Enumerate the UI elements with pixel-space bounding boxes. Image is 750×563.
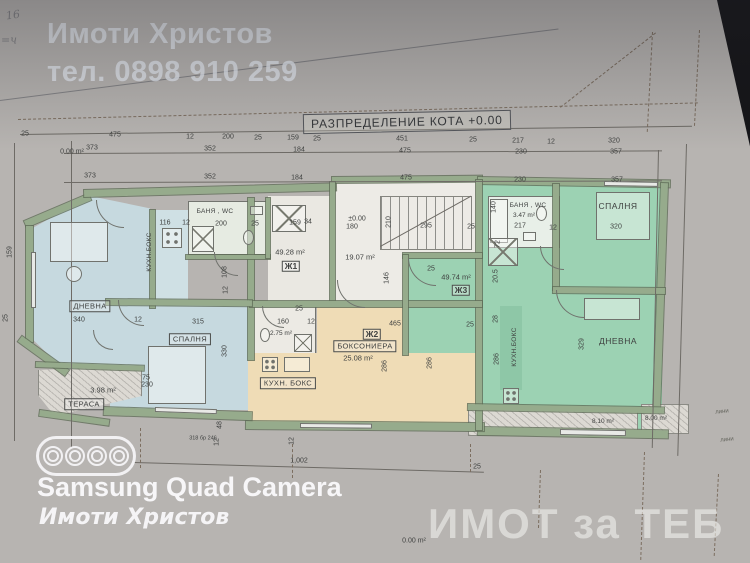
room-label: КУХН.БОКС bbox=[147, 232, 154, 271]
boundary-line-label: лини bbox=[720, 436, 734, 443]
dashed-boundary-line bbox=[647, 32, 653, 132]
dim-label: 230 bbox=[515, 149, 527, 156]
dashed-boundary-line bbox=[470, 444, 471, 472]
wall-segment bbox=[266, 198, 270, 258]
dim-label: 230 bbox=[141, 382, 153, 389]
dim-label: 72 bbox=[495, 240, 502, 248]
boundary-line-label: лини bbox=[715, 408, 729, 415]
area-label: 8.00 m² bbox=[645, 416, 667, 423]
counter-outline bbox=[284, 357, 310, 372]
dimension-line bbox=[14, 143, 15, 441]
dim-label: 25 bbox=[427, 266, 435, 273]
dim-label: 25 bbox=[295, 306, 303, 313]
dim-label: 12 bbox=[223, 286, 230, 294]
dim-label: 200 bbox=[215, 221, 227, 228]
dim-label: 12 bbox=[182, 220, 190, 227]
dim-label: 25 bbox=[21, 131, 29, 138]
dim-label: 230 bbox=[514, 177, 526, 184]
dim-label: 1,002 bbox=[290, 458, 308, 465]
wall-segment bbox=[250, 301, 482, 307]
corner-watermark: ИМОТ за ТЕБ bbox=[428, 500, 724, 548]
dim-label: 25 bbox=[251, 221, 259, 228]
shaft-symbol bbox=[272, 205, 306, 232]
room-label: СПАЛНЯ bbox=[169, 333, 211, 345]
dim-label: 357 bbox=[610, 149, 622, 156]
dim-label: 12 bbox=[134, 317, 142, 324]
sofa-outline bbox=[584, 298, 640, 320]
dim-label: 329 bbox=[579, 338, 586, 350]
dim-label: 12 bbox=[289, 437, 296, 445]
area-label: 8.10 m² bbox=[592, 419, 614, 426]
dim-label: 200 bbox=[222, 134, 234, 141]
dim-label: 340 bbox=[73, 317, 85, 324]
room-label: БОКСОНИЕРА bbox=[333, 340, 396, 352]
window-symbol bbox=[31, 252, 36, 308]
pencil-note: 16 bbox=[5, 9, 20, 22]
shower-icon bbox=[294, 334, 312, 352]
camera-lens-icon bbox=[43, 446, 63, 466]
dim-label: 352 bbox=[204, 146, 216, 153]
dim-label: 357 bbox=[611, 177, 623, 184]
dim-label: 0.00 m² bbox=[402, 538, 426, 545]
dim-label: 12 bbox=[307, 319, 315, 326]
room-label: БАНЯ , WC bbox=[197, 209, 234, 216]
dim-label: 159 bbox=[7, 246, 14, 258]
area-label: 3.47 m² bbox=[513, 213, 535, 220]
area-label: 19.07 m² bbox=[345, 253, 375, 261]
room-label: БАНЯ , WC bbox=[510, 203, 547, 210]
bed-outline bbox=[148, 346, 206, 404]
apartment-label: Ж3 bbox=[452, 285, 470, 296]
room-label: КУХН. БОКС bbox=[260, 377, 316, 389]
agency-caption: Имоти Христов bbox=[39, 505, 229, 530]
dashed-boundary-line bbox=[694, 30, 700, 126]
dim-label: 465 bbox=[389, 321, 401, 328]
dim-label: 25 bbox=[313, 136, 321, 143]
paper-sheet: Имоти Христов тел. 0898 910 259 РАЗПРЕДЕ… bbox=[0, 0, 750, 563]
dim-label: 25 bbox=[473, 464, 481, 471]
wall-segment bbox=[403, 255, 408, 355]
dim-label: 25 bbox=[3, 314, 10, 322]
dim-label: 25 bbox=[469, 137, 477, 144]
dim-label: 315 bbox=[192, 319, 204, 326]
dim-label: 159 bbox=[287, 135, 299, 142]
window-symbol bbox=[300, 423, 372, 429]
stove-icon bbox=[162, 228, 182, 248]
dashed-boundary-line bbox=[140, 428, 141, 468]
room-label: КУХН.БОКС bbox=[512, 327, 519, 366]
dim-label: 330 bbox=[222, 345, 229, 357]
room-label: ДНЕВНА bbox=[69, 300, 110, 312]
wall-segment bbox=[39, 410, 109, 426]
dim-label: 25 bbox=[466, 322, 474, 329]
dim-label: 12 bbox=[186, 134, 194, 141]
quad-camera-icon bbox=[36, 436, 136, 476]
room-label: ДНЕВНА bbox=[599, 337, 637, 346]
dim-label: 352 bbox=[204, 174, 216, 181]
dim-label: 295 bbox=[420, 223, 432, 230]
plan-title: РАЗПРЕДЕЛЕНИЕ КОТА +0.00 bbox=[303, 110, 511, 134]
dim-label: 48 bbox=[217, 421, 224, 429]
dim-label: 108 bbox=[222, 266, 229, 278]
agency-watermark: Имоти Христов bbox=[47, 18, 273, 51]
dim-label: 0.00 m² bbox=[60, 149, 84, 156]
toilet-icon bbox=[243, 230, 254, 245]
dim-label: 184 bbox=[291, 175, 303, 182]
dim-label: 20.5 bbox=[493, 269, 500, 283]
wall-segment bbox=[84, 183, 336, 197]
stove-icon bbox=[262, 357, 278, 372]
window-symbol bbox=[560, 429, 626, 436]
dim-label: 159 bbox=[289, 220, 301, 227]
dim-label: 28 bbox=[493, 315, 500, 323]
apartment-label: Ж2 bbox=[363, 329, 381, 340]
dim-label: 160 bbox=[277, 319, 289, 326]
table-outline bbox=[66, 266, 82, 282]
pencil-note: =ч bbox=[1, 35, 17, 46]
dim-label: 140 bbox=[491, 201, 498, 213]
dim-label: 12 bbox=[547, 139, 555, 146]
dim-label: 12 bbox=[549, 225, 557, 232]
camera-lens-icon bbox=[109, 446, 129, 466]
dim-label: 286 bbox=[382, 360, 389, 372]
toilet-icon bbox=[260, 328, 270, 342]
agency-phone-watermark: тел. 0898 910 259 bbox=[47, 56, 298, 89]
dim-label: 34 bbox=[304, 219, 312, 226]
dim-label: 475 bbox=[399, 148, 411, 155]
stove-icon bbox=[503, 388, 519, 404]
room-label: ТЕРАСА bbox=[64, 398, 104, 410]
dim-label: 320 bbox=[608, 138, 620, 145]
dim-label: 373 bbox=[84, 173, 96, 180]
area-label: 25.08 m² bbox=[343, 354, 373, 362]
dim-label: 475 bbox=[109, 132, 121, 139]
sink-icon bbox=[250, 206, 263, 215]
dim-label: 25 bbox=[467, 224, 475, 231]
dim-label: 373 bbox=[86, 145, 98, 152]
dim-label: 184 bbox=[293, 147, 305, 154]
dashed-boundary-line bbox=[560, 33, 656, 108]
wall-segment bbox=[553, 184, 559, 290]
dim-label: ±0.00 bbox=[348, 216, 365, 223]
shaft-symbol bbox=[488, 238, 518, 266]
camera-caption: Samsung Quad Camera bbox=[37, 472, 342, 503]
camera-lens-icon bbox=[87, 446, 107, 466]
dim-label: 217 bbox=[512, 138, 524, 145]
dim-label: 25 bbox=[254, 135, 262, 142]
dim-label: 286 bbox=[427, 357, 434, 369]
dim-label: 75 bbox=[142, 375, 150, 382]
sofa-outline bbox=[50, 222, 108, 262]
area-label: 49.28 m² bbox=[275, 248, 305, 256]
dim-label: 217 bbox=[514, 223, 526, 230]
camera-lens-icon bbox=[65, 446, 85, 466]
dimension-line bbox=[64, 150, 662, 154]
dim-label: 210 bbox=[386, 216, 393, 228]
dim-label: 12 bbox=[214, 438, 221, 446]
dim-label: 475 bbox=[400, 175, 412, 182]
dim-label: 116 bbox=[159, 220, 170, 227]
dim-label: 146 bbox=[384, 272, 391, 284]
dim-label: 451 bbox=[396, 136, 408, 143]
bed-outline bbox=[596, 192, 650, 240]
area-label: 3.98 m² bbox=[90, 386, 115, 394]
sink-icon bbox=[523, 232, 536, 241]
dim-label: 180 bbox=[346, 224, 358, 231]
shower-icon bbox=[192, 226, 214, 252]
area-label: 2.75 m² bbox=[270, 331, 292, 338]
apartment-label: Ж1 bbox=[282, 261, 300, 272]
wall-segment bbox=[330, 182, 335, 306]
dim-label: 320 bbox=[610, 224, 622, 231]
room-label: СПАЛНЯ bbox=[599, 202, 638, 211]
dim-label: 286 bbox=[494, 353, 501, 365]
area-label: 49.74 m² bbox=[441, 273, 471, 281]
